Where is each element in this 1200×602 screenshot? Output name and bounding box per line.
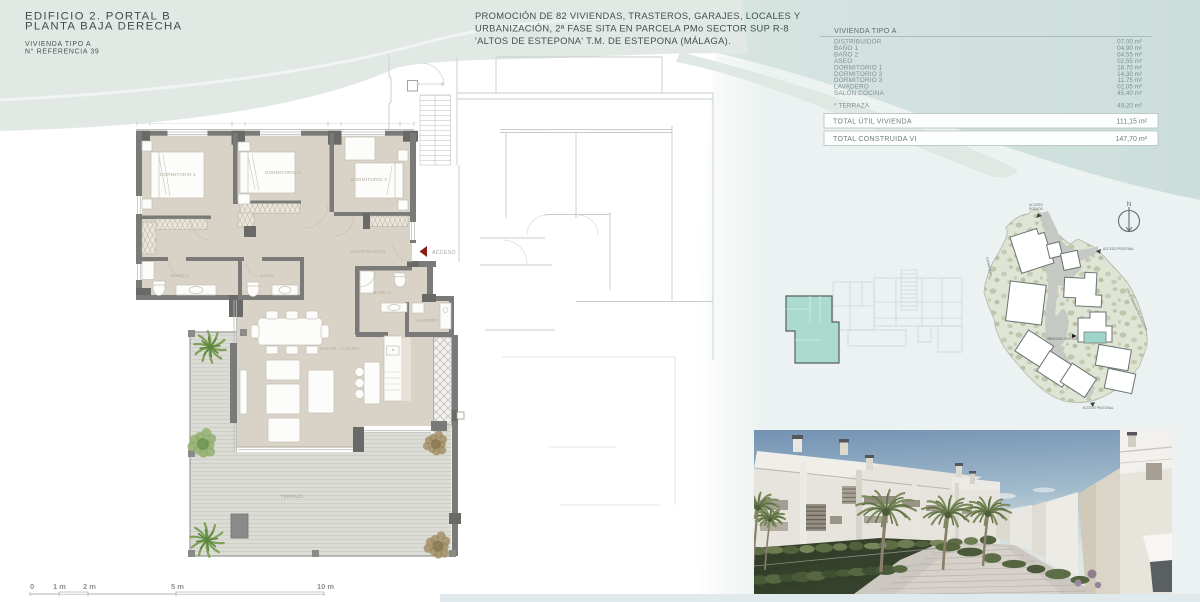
svg-text:5 m: 5 m xyxy=(171,582,184,591)
svg-text:1 m: 1 m xyxy=(53,582,66,591)
svg-text:45,40 m²: 45,40 m² xyxy=(1117,90,1142,97)
svg-text:PLANTA BAJA DERECHA: PLANTA BAJA DERECHA xyxy=(25,21,182,33)
svg-text:ACCESO PEATONAL: ACCESO PEATONAL xyxy=(1082,406,1113,410)
svg-text:TERRAZA: TERRAZA xyxy=(281,494,305,499)
svg-text:2 m: 2 m xyxy=(83,582,96,591)
svg-text:DISTRIBUIDOR: DISTRIBUIDOR xyxy=(350,249,386,254)
svg-text:VIVIENDA TIPO A: VIVIENDA TIPO A xyxy=(25,41,91,48)
svg-text:PROMOCIÓN DE 82 VIVIENDAS, TRA: PROMOCIÓN DE 82 VIVIENDAS, TRASTEROS, GA… xyxy=(475,10,801,21)
svg-text:147,70 m²: 147,70 m² xyxy=(1115,136,1147,143)
svg-text:ACCESO: ACCESO xyxy=(432,250,456,256)
svg-text:TOTAL ÚTIL VIVIENDA: TOTAL ÚTIL VIVIENDA xyxy=(833,117,912,126)
svg-text:N: N xyxy=(1127,201,1132,208)
svg-text:ACCESO PEATONAL: ACCESO PEATONAL xyxy=(1103,247,1134,251)
svg-text:0: 0 xyxy=(30,582,34,591)
svg-text:DORMITORIO 2: DORMITORIO 2 xyxy=(265,170,301,175)
svg-text:DORMITORIO 3: DORMITORIO 3 xyxy=(351,177,387,182)
svg-text:10 m: 10 m xyxy=(317,582,334,591)
svg-text:'ALTOS DE ESTEPONA' T.M. DE ES: 'ALTOS DE ESTEPONA' T.M. DE ESTEPONA (MÁ… xyxy=(475,35,731,46)
svg-text:VIVIENDA TIPO A: VIVIENDA TIPO A xyxy=(834,26,897,35)
svg-text:RODADO: RODADO xyxy=(1029,207,1044,211)
svg-text:TOTAL CONSTRUIDA VI: TOTAL CONSTRUIDA VI xyxy=(833,136,917,143)
svg-text:BAÑO 2: BAÑO 2 xyxy=(373,289,391,295)
svg-text:LAVADERO: LAVADERO xyxy=(416,318,440,323)
svg-text:BAÑO 1: BAÑO 1 xyxy=(171,272,189,278)
svg-text:SALÓN.COCINA: SALÓN.COCINA xyxy=(834,88,885,97)
svg-text:111,15 m²: 111,15 m² xyxy=(1117,119,1148,126)
svg-text:URBANIZACIÓN, 2ª FASE SITA EN: URBANIZACIÓN, 2ª FASE SITA EN PARCELA PM… xyxy=(475,23,789,34)
svg-text:DORMITORIO 1: DORMITORIO 1 xyxy=(160,172,196,177)
svg-text:49,20 m²: 49,20 m² xyxy=(1117,103,1142,110)
svg-text:SALÓN . COCINA: SALÓN . COCINA xyxy=(320,345,361,351)
svg-text:* TERRAZA: * TERRAZA xyxy=(834,103,870,110)
svg-text:N° REFERENCIA 39: N° REFERENCIA 39 xyxy=(25,48,99,56)
svg-text:ASEO: ASEO xyxy=(260,273,274,278)
